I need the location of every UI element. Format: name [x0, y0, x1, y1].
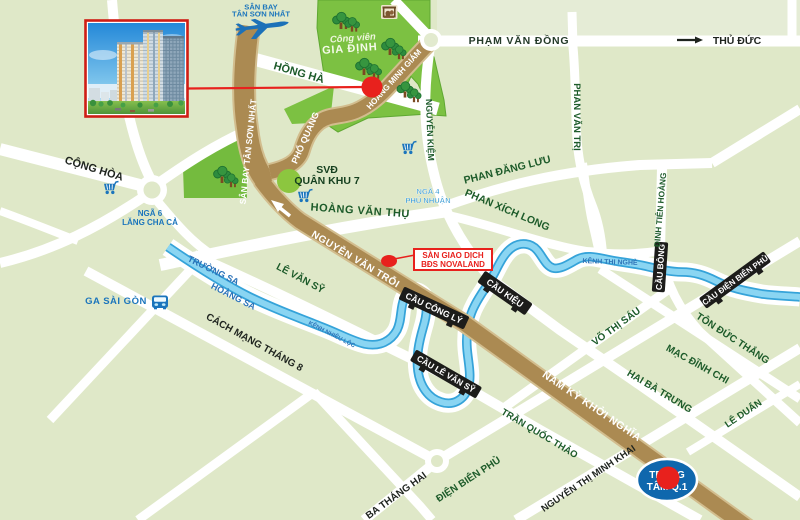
svg-text:GA SÀI GÒN: GA SÀI GÒN — [85, 295, 147, 307]
svg-text:THỦ ĐỨC: THỦ ĐỨC — [713, 34, 762, 47]
svg-text:NGÃ 4: NGÃ 4 — [417, 187, 441, 196]
svg-text:TÂN SƠN NHẤT: TÂN SƠN NHẤT — [232, 9, 290, 19]
svg-text:BĐS NOVALAND: BĐS NOVALAND — [421, 260, 485, 269]
svg-text:NGÃ 6: NGÃ 6 — [138, 209, 163, 218]
svg-text:PHÚ NHUẬN: PHÚ NHUẬN — [406, 196, 451, 205]
svg-text:PHAN VĂN TRỊ: PHAN VĂN TRỊ — [571, 83, 582, 151]
svg-text:NGUYỄN KIỆM: NGUYỄN KIỆM — [424, 99, 437, 161]
svg-text:LĂNG CHA CẢ: LĂNG CHA CẢ — [122, 218, 178, 227]
svg-text:PHẠM VĂN ĐỒNG: PHẠM VĂN ĐỒNG — [469, 34, 570, 47]
svg-text:SÀN GIAO DỊCH: SÀN GIAO DỊCH — [422, 251, 484, 260]
svg-text:QUÂN KHU 7: QUÂN KHU 7 — [294, 174, 359, 187]
